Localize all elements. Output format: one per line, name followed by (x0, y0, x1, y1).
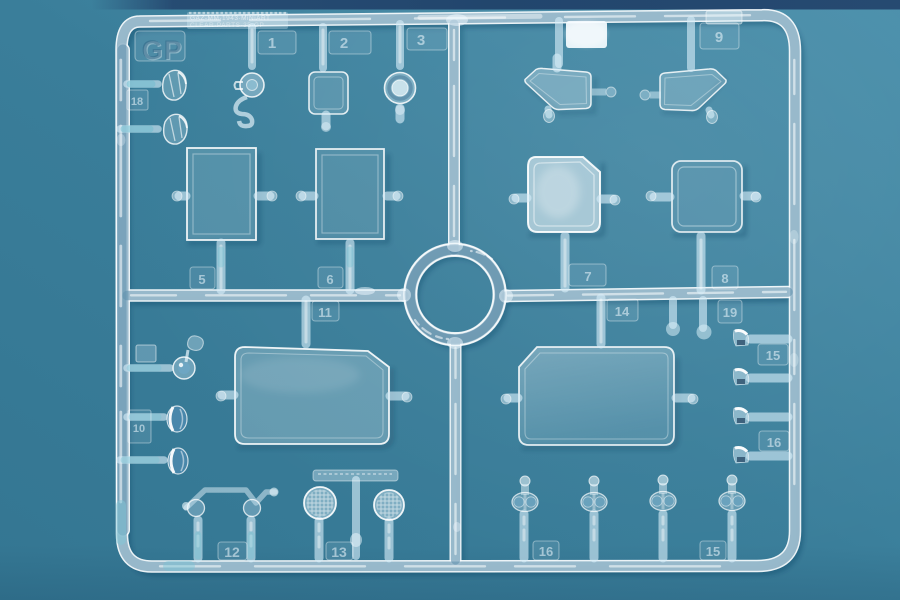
svg-text:5: 5 (198, 272, 205, 287)
svg-text:GAZ-MM·1943·MiNiART: GAZ-MM·1943·MiNiART (190, 15, 271, 22)
svg-text:15: 15 (706, 544, 720, 559)
svg-text:6: 6 (326, 272, 333, 287)
svg-text:15: 15 (766, 348, 780, 363)
svg-text:11: 11 (318, 305, 332, 320)
svg-text:7: 7 (584, 269, 591, 284)
svg-text:10: 10 (133, 423, 145, 435)
svg-text:14: 14 (615, 304, 630, 319)
svg-text:12: 12 (224, 544, 240, 560)
svg-text:9: 9 (715, 29, 723, 46)
svg-text:2: 2 (340, 35, 348, 52)
svg-text:8: 8 (721, 271, 728, 286)
svg-text:3: 3 (417, 32, 425, 49)
svg-text:18: 18 (131, 96, 143, 108)
svg-text:16: 16 (539, 544, 553, 559)
svg-text:1: 1 (268, 35, 276, 52)
svg-text:13: 13 (331, 544, 347, 560)
svg-text:CLEAR·PARTS·35·GP: CLEAR·PARTS·35·GP (190, 22, 264, 29)
svg-text:19: 19 (723, 305, 737, 320)
svg-text:GP: GP (141, 35, 182, 65)
svg-text:16: 16 (767, 435, 781, 450)
